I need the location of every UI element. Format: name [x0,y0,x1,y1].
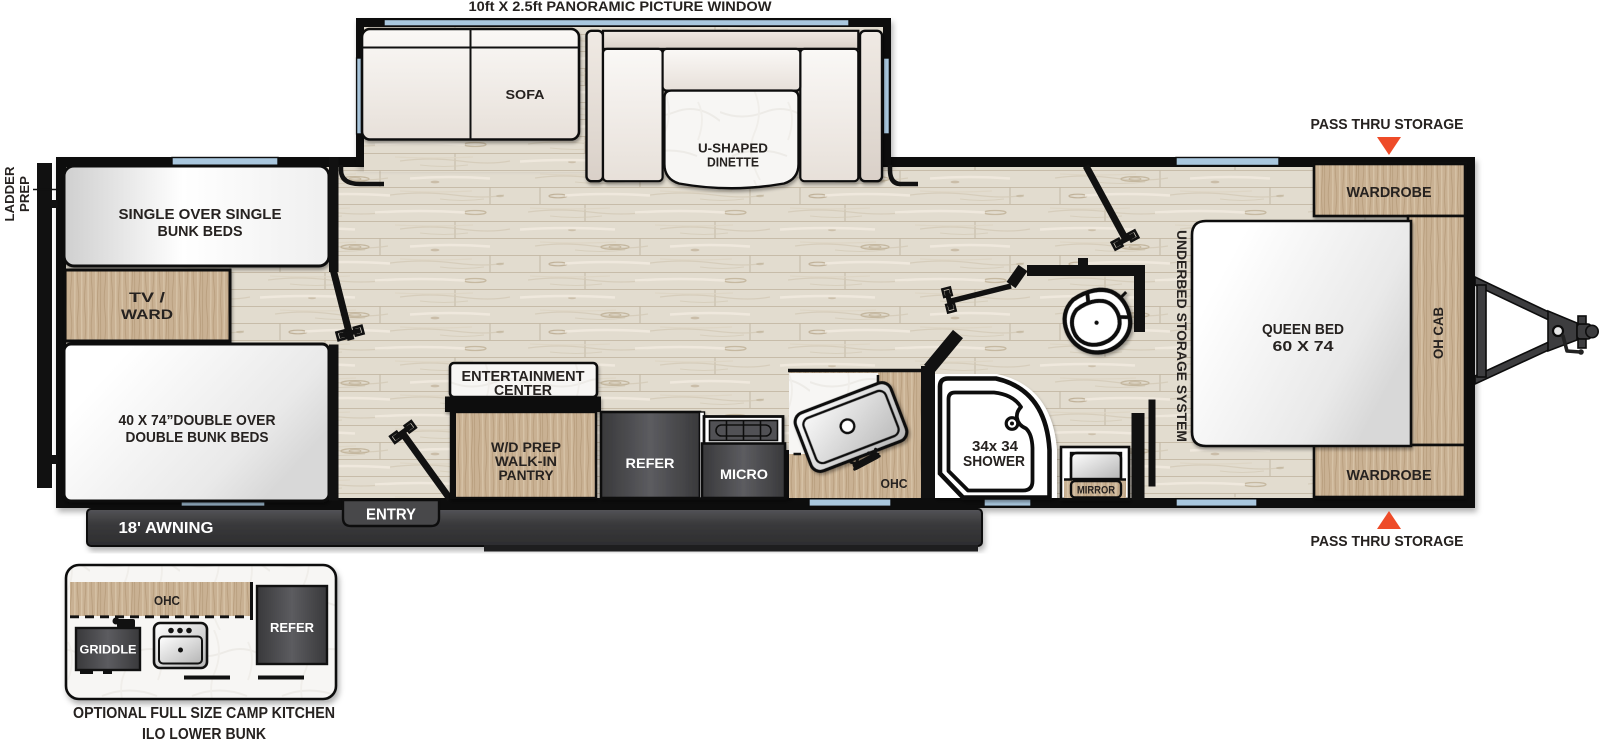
svg-text:WARDROBE: WARDROBE [1347,184,1432,201]
svg-text:OHC: OHC [154,593,181,608]
svg-text:REFER: REFER [270,620,315,635]
svg-text:SHOWER: SHOWER [963,453,1025,470]
svg-text:PREP: PREP [17,176,32,212]
svg-text:U-SHAPED: U-SHAPED [698,141,768,156]
svg-text:DINETTE: DINETTE [707,155,759,170]
svg-text:MIRROR: MIRROR [1077,485,1115,497]
svg-text:60 X 74: 60 X 74 [1273,338,1335,355]
svg-text:10ft X 2.5ft PANORAMIC PICTURE: 10ft X 2.5ft PANORAMIC PICTURE WINDOW [469,0,772,14]
svg-text:18' AWNING: 18' AWNING [119,520,214,537]
svg-text:CENTER: CENTER [494,383,553,399]
svg-text:REFER: REFER [626,455,675,471]
svg-text:MICRO: MICRO [720,467,768,482]
svg-text:WARDROBE: WARDROBE [1347,467,1432,484]
svg-text:LADDER: LADDER [2,166,17,222]
svg-text:PASS THRU STORAGE: PASS THRU STORAGE [1311,533,1464,550]
svg-text:WARD: WARD [121,306,173,322]
svg-text:40 X 74”DOUBLE OVER: 40 X 74”DOUBLE OVER [119,412,276,429]
svg-text:W/D PREP: W/D PREP [491,440,561,455]
svg-text:SOFA: SOFA [506,87,546,102]
svg-text:QUEEN BED: QUEEN BED [1262,321,1344,338]
svg-text:PANTRY: PANTRY [499,468,554,483]
svg-text:ILO LOWER BUNK: ILO LOWER BUNK [142,726,267,741]
svg-text:DOUBLE BUNK BEDS: DOUBLE BUNK BEDS [126,429,269,446]
svg-text:SINGLE OVER SINGLE: SINGLE OVER SINGLE [119,206,282,223]
svg-text:OH CAB: OH CAB [1431,307,1446,359]
svg-text:PASS THRU STORAGE: PASS THRU STORAGE [1311,116,1464,133]
svg-text:BUNK BEDS: BUNK BEDS [158,223,243,240]
svg-text:UNDERBED STORAGE SYSTEM: UNDERBED STORAGE SYSTEM [1174,230,1190,442]
svg-text:TV /: TV / [129,289,165,305]
svg-text:OPTIONAL FULL SIZE CAMP KITCHE: OPTIONAL FULL SIZE CAMP KITCHEN [73,705,335,722]
svg-text:ENTRY: ENTRY [366,507,416,524]
svg-text:GRIDDLE: GRIDDLE [80,643,137,657]
svg-text:OHC: OHC [881,476,909,491]
svg-text:WALK-IN: WALK-IN [495,454,557,469]
